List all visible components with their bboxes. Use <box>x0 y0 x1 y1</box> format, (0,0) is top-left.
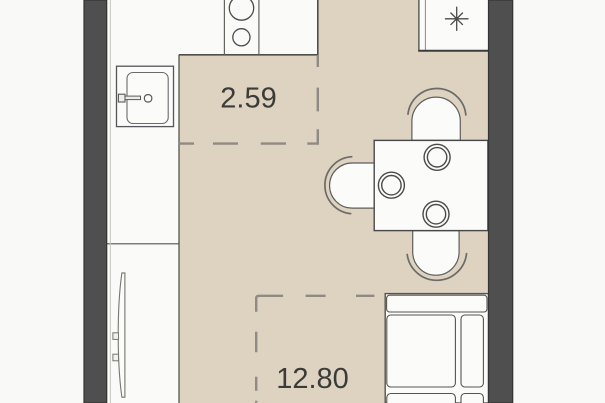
svg-text:12.80: 12.80 <box>276 363 349 395</box>
svg-text:2.59: 2.59 <box>220 83 276 115</box>
